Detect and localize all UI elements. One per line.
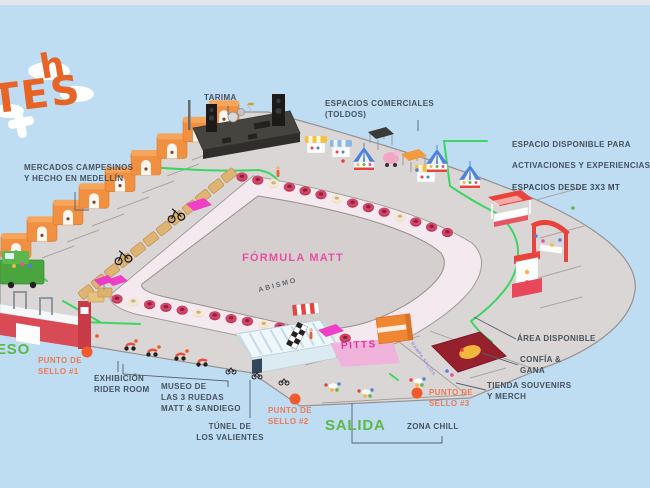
label-museo-3-ruedas: MUSEO DE LAS 3 RUEDAS MATT & SANDIEGO: [161, 382, 241, 414]
label-espacios-comerciales: ESPACIOS COMERCIALES (TOLDOS): [325, 99, 434, 121]
label-salida: SALIDA: [325, 416, 386, 436]
label-espacio-disponible: ESPACIO DISPONIBLE PARA ACTIVACIONES Y E…: [512, 129, 650, 205]
event-site-map: TARIMA ESPACIOS COMERCIALES (TOLDOS) ESP…: [0, 0, 650, 488]
espacio-line-1: ESPACIO DISPONIBLE PARA: [512, 140, 650, 151]
label-area-disponible: ÁREA DISPONIBLE: [517, 334, 596, 345]
map-illustration: [0, 0, 650, 488]
label-pitts: PITTS: [341, 338, 378, 353]
sello-dot-1: [82, 347, 93, 358]
label-tienda-souvenirs: TIENDA SOUVENIRS Y MERCH: [487, 381, 571, 403]
label-mercados-campesinos: MERCADOS CAMPESINOS Y HECHO EN MEDELLÍN: [24, 163, 133, 185]
orange-container: [376, 314, 413, 344]
label-exhibicion-rider-room: EXHIBICIÓN RIDER ROOM: [94, 374, 150, 396]
label-punto-sello-2: PUNTO DE SELLO #2: [268, 406, 312, 428]
label-punto-sello-1: PUNTO DE SELLO #1: [38, 356, 82, 378]
drum-kit: [228, 112, 238, 122]
label-zona-chill: ZONA CHILL: [407, 422, 459, 433]
label-tunel-valientes: TÚNEL DE LOS VALIENTES: [193, 422, 267, 444]
sello-dot-2: [290, 394, 301, 405]
label-ingreso-fragment: ESO: [0, 340, 30, 360]
sello-dot-3: [412, 388, 423, 399]
label-punto-sello-3: PUNTO DE SELLO #3: [429, 388, 473, 410]
espacio-line-3: ESPACIOS DESDE 3X3 MT: [512, 183, 650, 194]
label-confia-gana: CONFÍA & GANA: [520, 355, 561, 377]
espacio-line-2: ACTIVACIONES Y EXPERIENCIAS: [512, 161, 650, 172]
label-tarima: TARIMA: [204, 93, 237, 104]
label-formula-matt: FÓRMULA MATT: [228, 251, 358, 266]
